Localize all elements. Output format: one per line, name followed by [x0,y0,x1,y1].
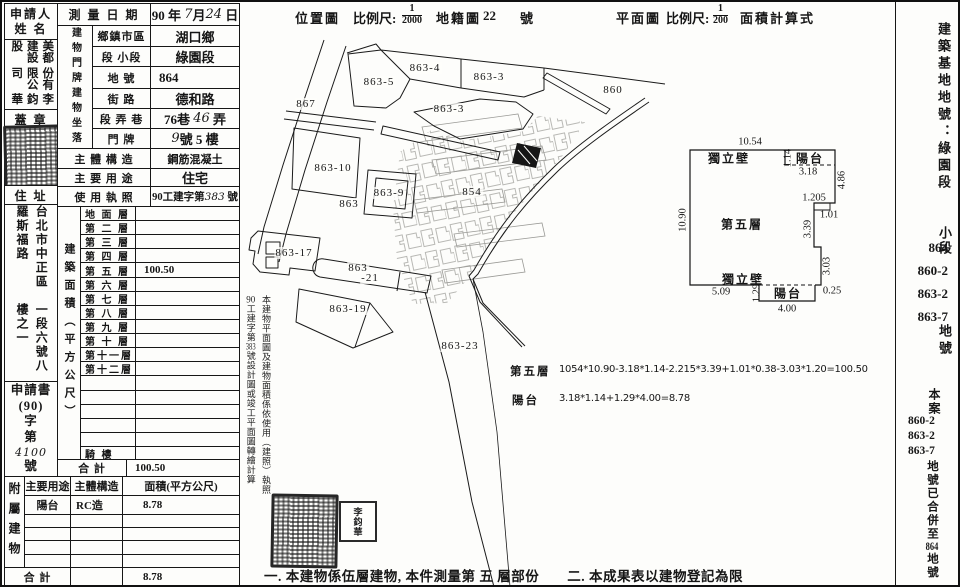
formula-balcony-label: 陽台 [512,392,539,408]
floor-row: 第 四 層 [80,248,240,263]
annex-empty-cell [70,554,123,568]
parcel-label: 863-19 [328,303,367,315]
floor-row: 第 三 層 [80,234,240,249]
plan-wall-top-label: 獨立壁 [708,150,750,167]
annex-structure-header: 主體構造 [70,476,123,496]
annex-area-header: 面積(平方公尺) [122,476,240,496]
street-label: 街 路 [92,88,151,109]
parcel-label: 863-9 [373,187,406,199]
floor-row: 第十一層 [80,347,240,362]
application-number-hand: 4100 [15,446,47,460]
parcel-label: 854 [461,186,483,198]
plan-balcony-bottom-label: 陽台 [774,285,802,302]
total-label: 合 計 [57,459,127,477]
address-value: 台北市中正區羅斯福路 一段六號八樓之一 [4,204,58,382]
parcel-label: 863 [338,198,360,210]
applicant-name: 美都建設股 份有限公司 李鈞華 [4,39,58,110]
plan-dim-025: 0.25 [823,286,841,297]
annex-usage-value: 陽台 [24,495,71,515]
plan-dim-left: 10.90 [678,208,689,232]
parcel-label: 860 [602,84,624,96]
township-label: 鄉鎮市區 [92,25,151,47]
annex-empty-cell [24,540,71,555]
annex-label: 附屬建物 [4,476,25,568]
application-number: 申請書 (90) 字 第 4100 號 [4,381,58,477]
parcel-label: -21 [360,272,380,284]
plan-dim-339: 3.39 [803,220,814,238]
door-plate-label: 門 牌 [92,128,151,149]
case-label: 本案 [926,388,943,416]
permit-value: 90工建字第383 號 [150,186,240,207]
formula-balcony: 3.18*1.14+1.29*4.00=8.78 [559,393,690,404]
plan-dim-303: 3.03 [822,257,833,275]
plan-dim-318: 3.18 [799,167,817,178]
floor-row [80,404,240,419]
plan-dim-1205: 1.205 [802,193,826,204]
total-value: 100.50 [126,459,240,477]
usage-value: 住宅 [150,168,240,187]
floor-row: 第 八 層 [80,305,240,320]
section-value: 綠園段 [150,46,240,67]
parcel-label: 863-5 [363,76,396,88]
door-plate-value: 9號 5 樓 [150,128,240,149]
lane-value: 76巷 46 弄 [150,108,240,129]
plan-dim-486: 4.86 [837,171,848,189]
right-column: 建築基地地號：綠園段 小段 864 860-2 863-2 863-7 地號 本… [895,2,960,587]
floor-row: 地 面 層 [80,206,240,221]
case-parcel-numbers: 860-2 863-2 863-7 [908,414,935,459]
plan-dim-129: 1.29 [752,284,763,302]
building-area-label: 建築面積（平方公尺） [57,206,81,460]
parcel-label: 863-3 [473,71,506,83]
map-and-plan-area: 位置圖 比例尺: 12000 地籍圖 22 號 平面圖 比例尺: 1200 面積… [240,2,895,587]
parcel-label: 863-23 [440,340,479,352]
structure-label: 主 體 構 造 [57,148,151,169]
site-parcel-numbers: 864 860-2 863-2 863-7 [900,236,948,328]
permit-label: 使 用 執 照 [57,186,151,207]
floor-row-5f: 第 五 層100.50 [80,262,240,278]
annex-empty-cell [70,540,123,555]
footer-note: 一. 本建物係伍層建物, 本件測量第 五 層部份 二. 本成果表以建物登記為限 [264,565,743,585]
survey-date-value: 90 年 7月24 日 [150,3,240,26]
annex-usage-header: 主要用途 [24,476,71,496]
floor-row [80,390,240,405]
floor-row [80,418,240,433]
company-seal-stamp-2 [270,493,338,568]
floor-row [80,375,240,391]
annex-empty-cell [122,527,240,541]
parcel-label: 863-17 [274,247,313,259]
formula-5f-label: 第五層 [510,363,551,379]
form-table: 申請人 姓 名 美都建設股 份有限公司 李鈞華 蓋 章 住 址 台北市中正區羅斯… [4,3,240,586]
street-value: 德和路 [150,88,240,109]
parcel-unit-label: 地號 [935,324,954,358]
annex-total-label: 合 計 [4,567,71,586]
annex-empty-cell [122,540,240,555]
floor-row: 第 二 層 [80,220,240,235]
formula-5f: 1054*10.90-3.18*1.14-2.215*3.39+1.01*0.3… [559,364,868,375]
annex-empty-cell [122,554,240,568]
site-parcel-title: 建築基地地號：綠園段 [934,22,953,222]
annex-empty-cell [24,554,71,568]
address-label: 住 址 [4,185,58,205]
annex-empty-cell [24,527,71,541]
parcel-label: 867 [295,98,317,110]
arcade-row: 騎 樓 [80,446,240,460]
annex-structure-value: RC造 [70,495,123,515]
plan-balcony-top-label: 陽台 [796,150,824,167]
section-label: 段 小段 [92,46,151,67]
usage-label: 主 要 用 途 [57,168,151,187]
plan-dim-400: 4.00 [778,304,796,315]
floor-row: 第 六 層 [80,277,240,292]
plan-dim-509: 5.09 [712,287,730,298]
annex-empty-cell [122,514,240,528]
building-site-column: 建物門牌 建物坐落 [57,25,93,149]
merge-note: 地號已合併至864地號 [924,460,940,587]
plan-room-label: 第五層 [721,216,763,233]
annex-empty-cell [70,514,123,528]
housing-cluster [393,116,585,304]
floor-row: 第十二層 [80,361,240,376]
floor-row: 第 十 層 [80,333,240,348]
lane-label: 段 弄 巷 [92,108,151,129]
applicant-label: 申請人 姓 名 [4,3,58,40]
annex-area-value: 8.78 [122,495,240,515]
parcel-no-label: 地 號 [92,66,151,89]
plan-dim-101: 1.01 [820,210,838,221]
parcel-label: 863-10 [313,162,352,174]
structure-value: 鋼筋混凝土 [150,148,240,169]
parcel-no-value: 864 [150,66,240,89]
survey-result-sheet: 申請人 姓 名 美都建設股 份有限公司 李鈞華 蓋 章 住 址 台北市中正區羅斯… [0,0,960,587]
plan-dim-114: 1.14 [783,149,794,167]
annex-empty-cell [70,527,123,541]
parcel-label: 863-4 [409,62,442,74]
floor-row: 第 七 層 [80,291,240,306]
parcel-label: 863-3 [433,103,466,115]
survey-date-label: 測 量 日 期 [57,3,151,26]
personal-seal-stamp: 李鈞華 [339,501,377,542]
annex-total-empty [70,567,123,586]
floor-row: 第 九 層 [80,319,240,334]
floor-row [80,432,240,447]
township-value: 湖口鄉 [150,25,240,47]
plan-dim-top: 10.54 [738,137,762,148]
annex-total-value: 8.78 [122,567,240,586]
annex-empty-cell [24,514,71,528]
